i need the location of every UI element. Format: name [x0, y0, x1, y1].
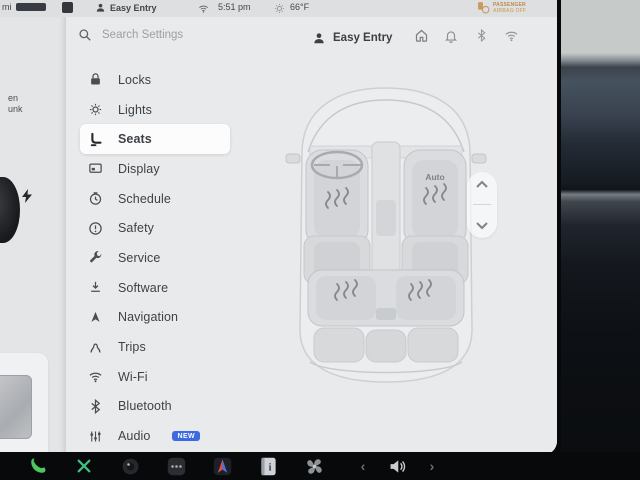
sidebar-item-software[interactable]: Software [80, 273, 230, 303]
sidebar-item-seats[interactable]: Seats [80, 124, 230, 154]
all-apps-button[interactable] [165, 455, 187, 477]
settings-sidebar: Locks Lights Seats Display Schedule [80, 65, 230, 451]
bluetooth-icon [475, 29, 488, 42]
search-icon [78, 28, 92, 42]
charge-bolt-icon [22, 189, 32, 203]
sidebar-item-audio[interactable]: Audio NEW [80, 421, 230, 451]
settings-panel: Easy Entry [66, 17, 557, 455]
car-render-partial [0, 177, 20, 243]
wifi-button[interactable] [496, 28, 526, 48]
navigation-icon [88, 310, 103, 325]
owners-manual-button[interactable]: i [257, 455, 279, 477]
sun-icon [274, 3, 285, 14]
touchscreen: mi Easy Entry 5:51 pm 66°F PASSENGER [0, 0, 557, 455]
nav-app-button[interactable] [211, 455, 233, 477]
driver-profile[interactable]: Easy Entry [95, 2, 157, 13]
battery-icon [16, 3, 46, 11]
underlying-screen-strip: en unk [0, 17, 66, 455]
volume-button[interactable] [386, 455, 408, 477]
seat-icon [88, 132, 103, 147]
manual-icon: i [260, 457, 277, 476]
camera-icon [121, 457, 140, 476]
mirror-right [472, 154, 486, 163]
profile-icon [312, 31, 326, 45]
wifi-icon [504, 28, 519, 43]
time-label: 5:51 pm [218, 2, 251, 12]
status-bar: mi Easy Entry 5:51 pm 66°F PASSENGER [0, 0, 557, 17]
profile-name: Easy Entry [110, 3, 157, 13]
bottom-left-card[interactable] [0, 353, 48, 455]
chevron-down-icon[interactable] [475, 221, 489, 230]
temperature-label: 66°F [290, 2, 309, 12]
sidebar-item-navigation[interactable]: Navigation [80, 303, 230, 333]
chevron-right-icon: › [430, 458, 435, 474]
schedule-icon [88, 191, 103, 206]
audio-icon [88, 429, 103, 444]
x-app-button[interactable] [73, 455, 95, 477]
cutoff-text-open: en [8, 93, 23, 104]
car-interior-background [557, 0, 640, 480]
bell-icon [444, 29, 458, 43]
battery-range: mi [2, 2, 46, 12]
passenger-airbag-indicator: PASSENGER AIRBAG OFF [477, 1, 526, 14]
home-icon [414, 28, 429, 43]
software-icon [88, 280, 103, 295]
wifi-icon [88, 369, 103, 384]
nav-arrow-icon [213, 457, 232, 476]
rear-bench-seat[interactable] [308, 270, 464, 362]
new-badge: NEW [172, 431, 200, 441]
bluetooth-icon [88, 399, 103, 414]
search-settings[interactable] [78, 28, 252, 42]
airbag-line1: PASSENGER [493, 2, 526, 8]
outside-temperature[interactable]: 66°F [290, 2, 309, 12]
apps-dots-icon [167, 457, 186, 476]
home-button[interactable] [406, 28, 436, 48]
range-unit-label: mi [2, 2, 12, 12]
media-prev-button[interactable]: ‹ [352, 455, 374, 477]
speaker-icon [388, 458, 407, 475]
chevron-up-icon[interactable] [475, 180, 489, 189]
phone-button[interactable] [27, 455, 49, 477]
passenger-seat-mode-label: Auto [425, 172, 444, 182]
service-icon [88, 250, 103, 265]
seat-diagram: Auto [280, 80, 492, 398]
bluetooth-button[interactable] [466, 29, 496, 47]
front-right-seat[interactable]: Auto [402, 150, 468, 284]
fan-icon [305, 457, 324, 476]
mirror-left [286, 154, 300, 163]
chevron-left-icon: ‹ [361, 458, 366, 474]
sidebar-item-service[interactable]: Service [80, 243, 230, 273]
sidebar-item-trips[interactable]: Trips [80, 332, 230, 362]
sidebar-item-schedule[interactable]: Schedule [80, 184, 230, 214]
search-input[interactable] [102, 29, 252, 41]
media-next-button[interactable]: › [421, 455, 443, 477]
profile-menu[interactable]: Easy Entry [312, 31, 392, 45]
lights-icon [88, 102, 103, 117]
lock-icon [88, 72, 103, 87]
front-left-seat[interactable] [304, 150, 370, 284]
display-icon [88, 161, 103, 176]
sidebar-item-wifi[interactable]: Wi-Fi [80, 362, 230, 392]
sidebar-item-locks[interactable]: Locks [80, 65, 230, 95]
camera-button[interactable] [119, 455, 141, 477]
phone-icon [29, 457, 47, 475]
sidebar-item-bluetooth[interactable]: Bluetooth [80, 392, 230, 422]
profile-icon [95, 2, 106, 13]
safety-icon [88, 221, 103, 236]
profile-name: Easy Entry [333, 32, 392, 44]
airbag-line2: AIRBAG OFF [493, 8, 526, 14]
settings-header: Easy Entry [66, 25, 557, 51]
photo-of-tesla-screen: mi Easy Entry 5:51 pm 66°F PASSENGER [0, 0, 640, 480]
trips-icon [88, 340, 103, 355]
clock: 5:51 pm [218, 2, 251, 12]
sidebar-item-safety[interactable]: Safety [80, 213, 230, 243]
rear-armrest [376, 308, 396, 320]
x-app-icon [76, 458, 92, 474]
airbag-icon [477, 1, 490, 14]
taskbar: i ‹ › [0, 452, 640, 480]
seat-page-scroller [467, 172, 497, 238]
seat-render-partial [0, 375, 32, 439]
svg-text:i: i [268, 462, 271, 473]
divider [473, 204, 491, 205]
sidebar-item-lights[interactable]: Lights [80, 95, 230, 125]
cutoff-text-trunk: unk [8, 104, 23, 115]
sidebar-item-display[interactable]: Display [80, 154, 230, 184]
notifications-button[interactable] [436, 29, 466, 48]
status-icon [62, 2, 73, 13]
wifi-icon [198, 3, 209, 14]
fan-button[interactable] [303, 455, 325, 477]
console-armrest [376, 200, 396, 236]
